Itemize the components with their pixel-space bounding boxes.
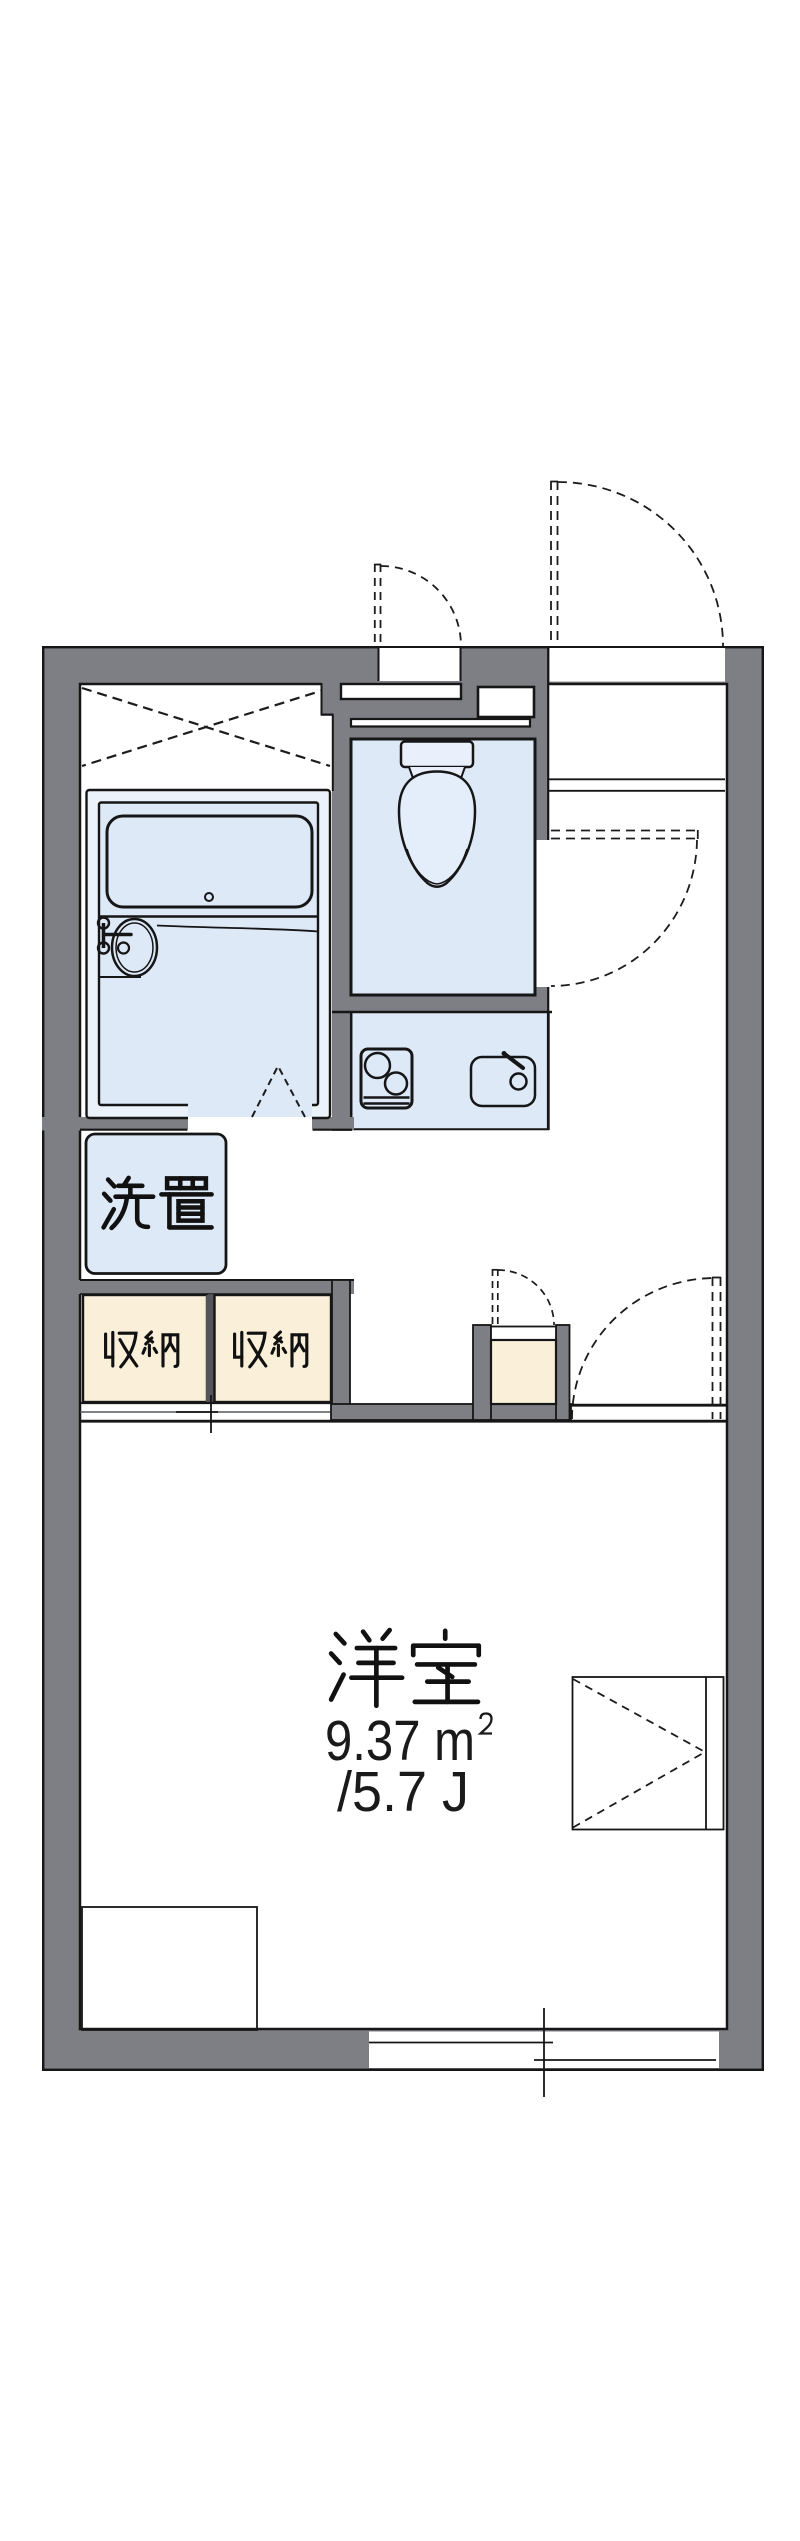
svg-text:/5.7 J: /5.7 J — [337, 1760, 469, 1824]
